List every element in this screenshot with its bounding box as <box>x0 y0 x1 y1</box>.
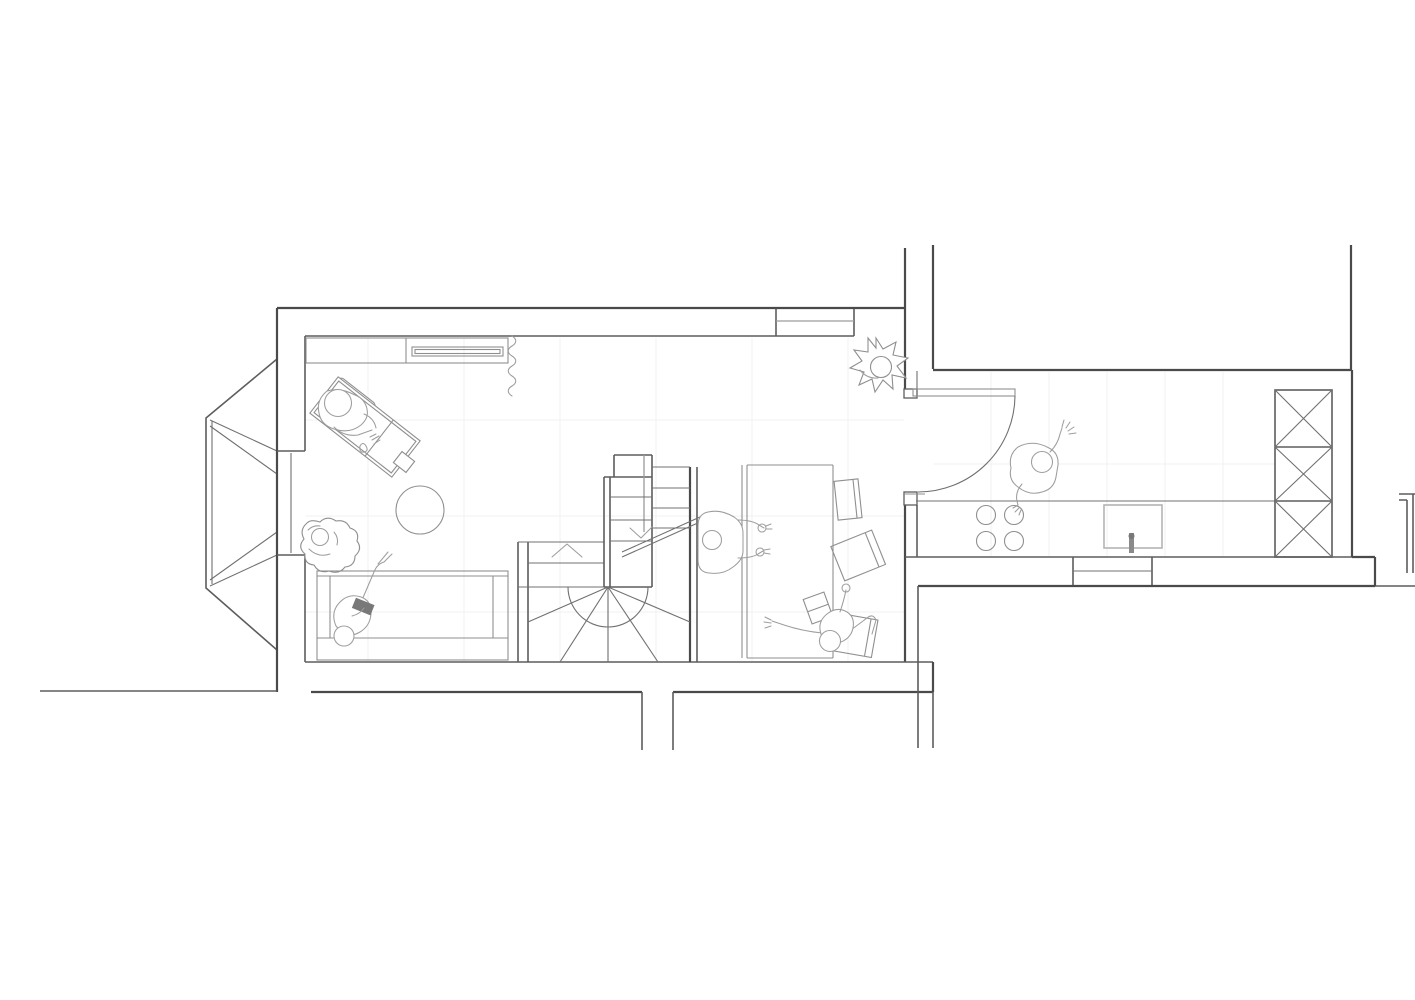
door-swing-arc <box>918 396 1015 492</box>
sink <box>1104 505 1162 553</box>
kitchen <box>904 390 1332 557</box>
head <box>325 390 352 417</box>
round-rug <box>396 486 444 534</box>
head <box>1032 452 1053 473</box>
potted-plant <box>850 338 908 392</box>
door-jamb-top <box>904 389 917 398</box>
hob <box>977 506 1024 551</box>
window-left <box>277 451 305 555</box>
wall-shelf-unit <box>306 338 508 363</box>
walls <box>40 245 1415 750</box>
curtain-squiggle <box>508 336 516 396</box>
entry-door <box>904 389 1015 505</box>
window-kitchen <box>1073 557 1152 586</box>
desk-workstation <box>310 377 420 478</box>
winder-staircase <box>518 455 700 662</box>
dining-nook <box>698 465 886 658</box>
head <box>312 529 329 546</box>
ladder-arrow <box>630 527 652 538</box>
door-leaf <box>913 389 1015 396</box>
person-lounging <box>764 584 876 652</box>
tall-cabinets <box>1275 390 1332 557</box>
wall-shaft <box>776 309 854 336</box>
armchair <box>301 518 360 572</box>
stair-direction-arrow <box>552 544 582 557</box>
head <box>703 531 722 550</box>
floor-plan-svg <box>0 0 1415 1000</box>
dining-chair-2 <box>831 530 886 581</box>
floor-plan-page <box>0 0 1415 1000</box>
bench <box>742 465 747 658</box>
dormer-bay-window <box>206 359 277 650</box>
head <box>820 631 841 652</box>
head <box>334 626 354 646</box>
person-at-table <box>698 511 772 573</box>
floor-tile-grid <box>306 338 1274 661</box>
